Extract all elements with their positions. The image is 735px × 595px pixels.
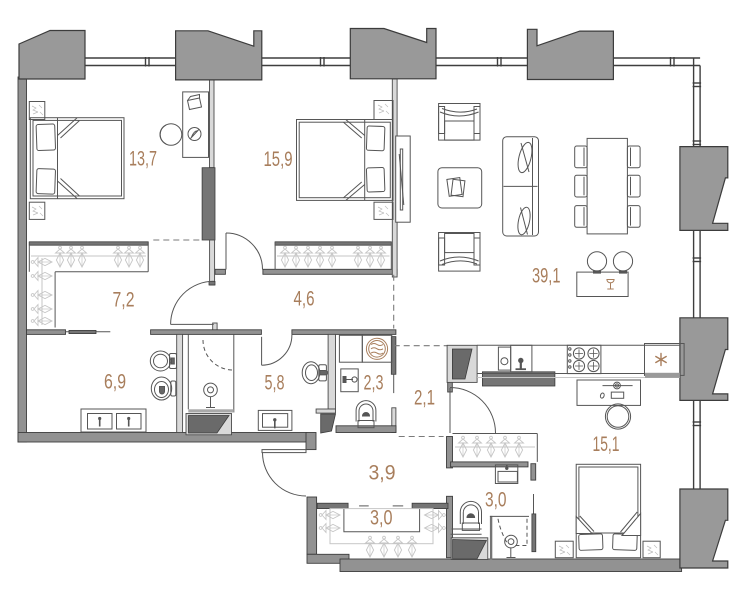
svg-text:3,0: 3,0 (370, 506, 393, 530)
svg-text:7,2: 7,2 (113, 288, 135, 312)
svg-text:15,1: 15,1 (593, 432, 620, 456)
svg-text:5,8: 5,8 (265, 371, 285, 395)
svg-text:6,9: 6,9 (104, 370, 126, 394)
svg-text:3,0: 3,0 (485, 488, 507, 512)
svg-text:15,9: 15,9 (264, 147, 293, 171)
svg-text:39,1: 39,1 (532, 264, 561, 288)
svg-text:2,1: 2,1 (414, 386, 435, 410)
svg-text:2,3: 2,3 (364, 371, 384, 395)
svg-text:13,7: 13,7 (129, 147, 157, 171)
svg-text:4,6: 4,6 (294, 287, 315, 311)
svg-text:3,9: 3,9 (369, 461, 396, 485)
